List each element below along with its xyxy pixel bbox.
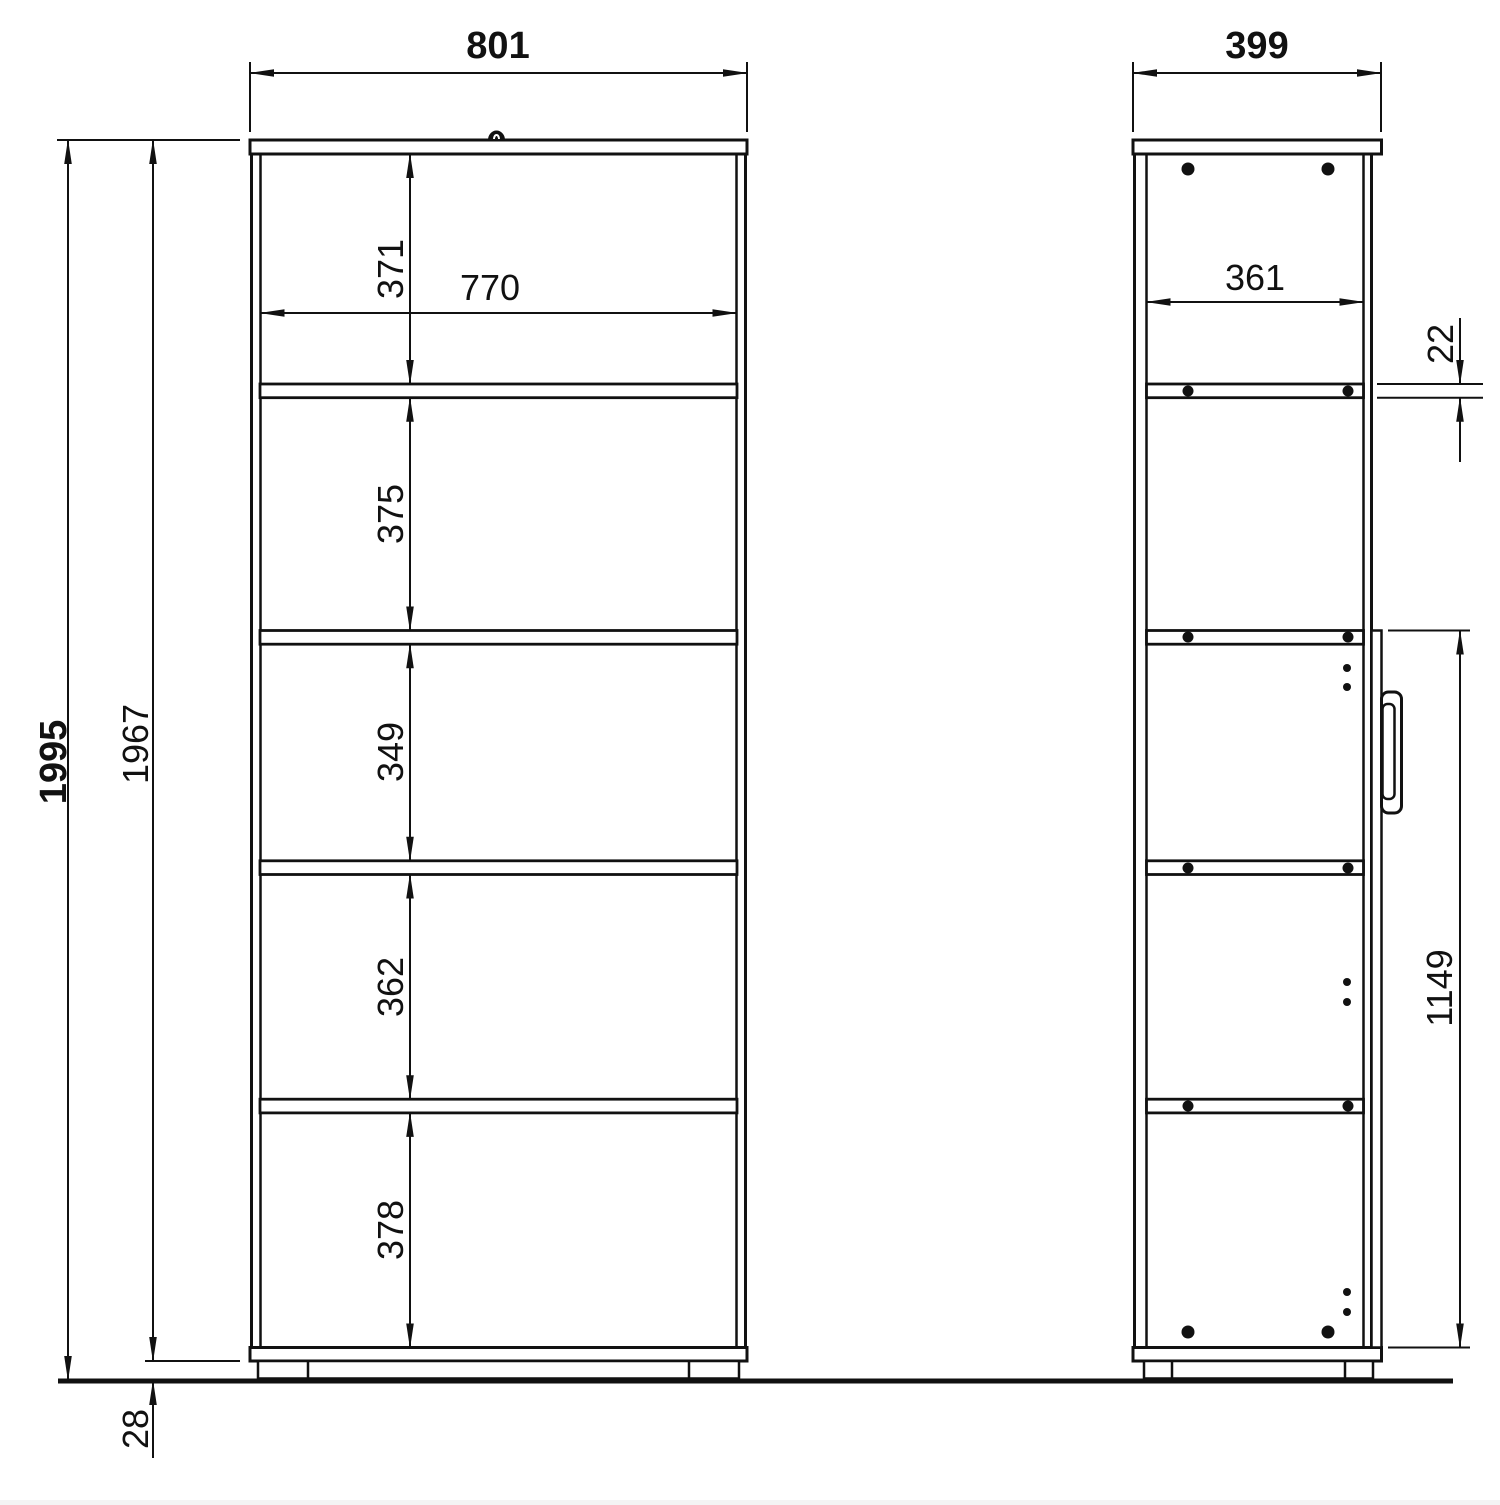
door-handle: [1382, 692, 1402, 813]
dim-feet-height: 28: [115, 1381, 156, 1458]
dim-overall-height-text: 1995: [33, 720, 75, 805]
dim-section3-text: 349: [370, 722, 411, 782]
front-shelf-1: [260, 384, 737, 398]
side-plinth: [1144, 1361, 1373, 1379]
door-handle-outer: [1382, 692, 1402, 813]
side-bottom-panel: [1133, 1348, 1382, 1362]
dim-section5-text: 378: [370, 1200, 411, 1260]
dim-overall-width-text: 801: [466, 25, 529, 67]
dim-shelf-thickness: 22: [1377, 318, 1483, 462]
dim-section4-text: 362: [370, 957, 411, 1017]
side-shelf-1: [1147, 384, 1364, 398]
drawing-canvas: 801 770 1995 1967 28 371 375 349 362 378…: [0, 0, 1500, 1500]
dim-body-height-text: 1967: [115, 704, 156, 784]
dim-inner-depth: 361: [1147, 257, 1364, 302]
side-shelf-3: [1147, 861, 1364, 875]
shelf-pin-dots: [1343, 664, 1351, 1316]
dim-inner-width-text: 770: [460, 267, 520, 308]
dim-overall-depth: 399: [1133, 25, 1381, 132]
side-shelf-2: [1147, 631, 1364, 645]
side-feet: [1144, 1361, 1373, 1379]
front-plinth: [258, 1361, 739, 1379]
front-shelf-3: [260, 861, 737, 875]
front-view: [250, 132, 747, 1379]
front-shelf-2: [260, 631, 737, 645]
connector-dots: [1182, 163, 1354, 1339]
front-shelf-4: [260, 1099, 737, 1113]
dim-inner-width: 770: [261, 267, 737, 313]
dim-section1-text: 371: [370, 239, 411, 299]
dim-feet-height-text: 28: [115, 1409, 156, 1449]
side-shelf-4: [1147, 1099, 1364, 1113]
dim-door-height-text: 1149: [1419, 949, 1460, 1026]
wall-mount-knob: [489, 132, 504, 141]
side-top-panel: [1133, 140, 1382, 154]
dim-body-height: 1967: [115, 140, 240, 1361]
front-top-panel: [250, 140, 747, 154]
dim-section2-text: 375: [370, 484, 411, 544]
dim-inner-depth-text: 361: [1225, 257, 1285, 298]
dim-sections: 371 375 349 362 378: [370, 154, 411, 1348]
front-bottom-panel: [250, 1348, 747, 1362]
dim-overall-depth-text: 399: [1225, 25, 1288, 67]
dim-shelf-thickness-text: 22: [1420, 324, 1461, 364]
dim-overall-width: 801: [250, 25, 747, 132]
technical-drawing: 801 770 1995 1967 28 371 375 349 362 378…: [0, 0, 1500, 1500]
front-feet: [258, 1361, 739, 1379]
side-view: [1133, 140, 1402, 1379]
